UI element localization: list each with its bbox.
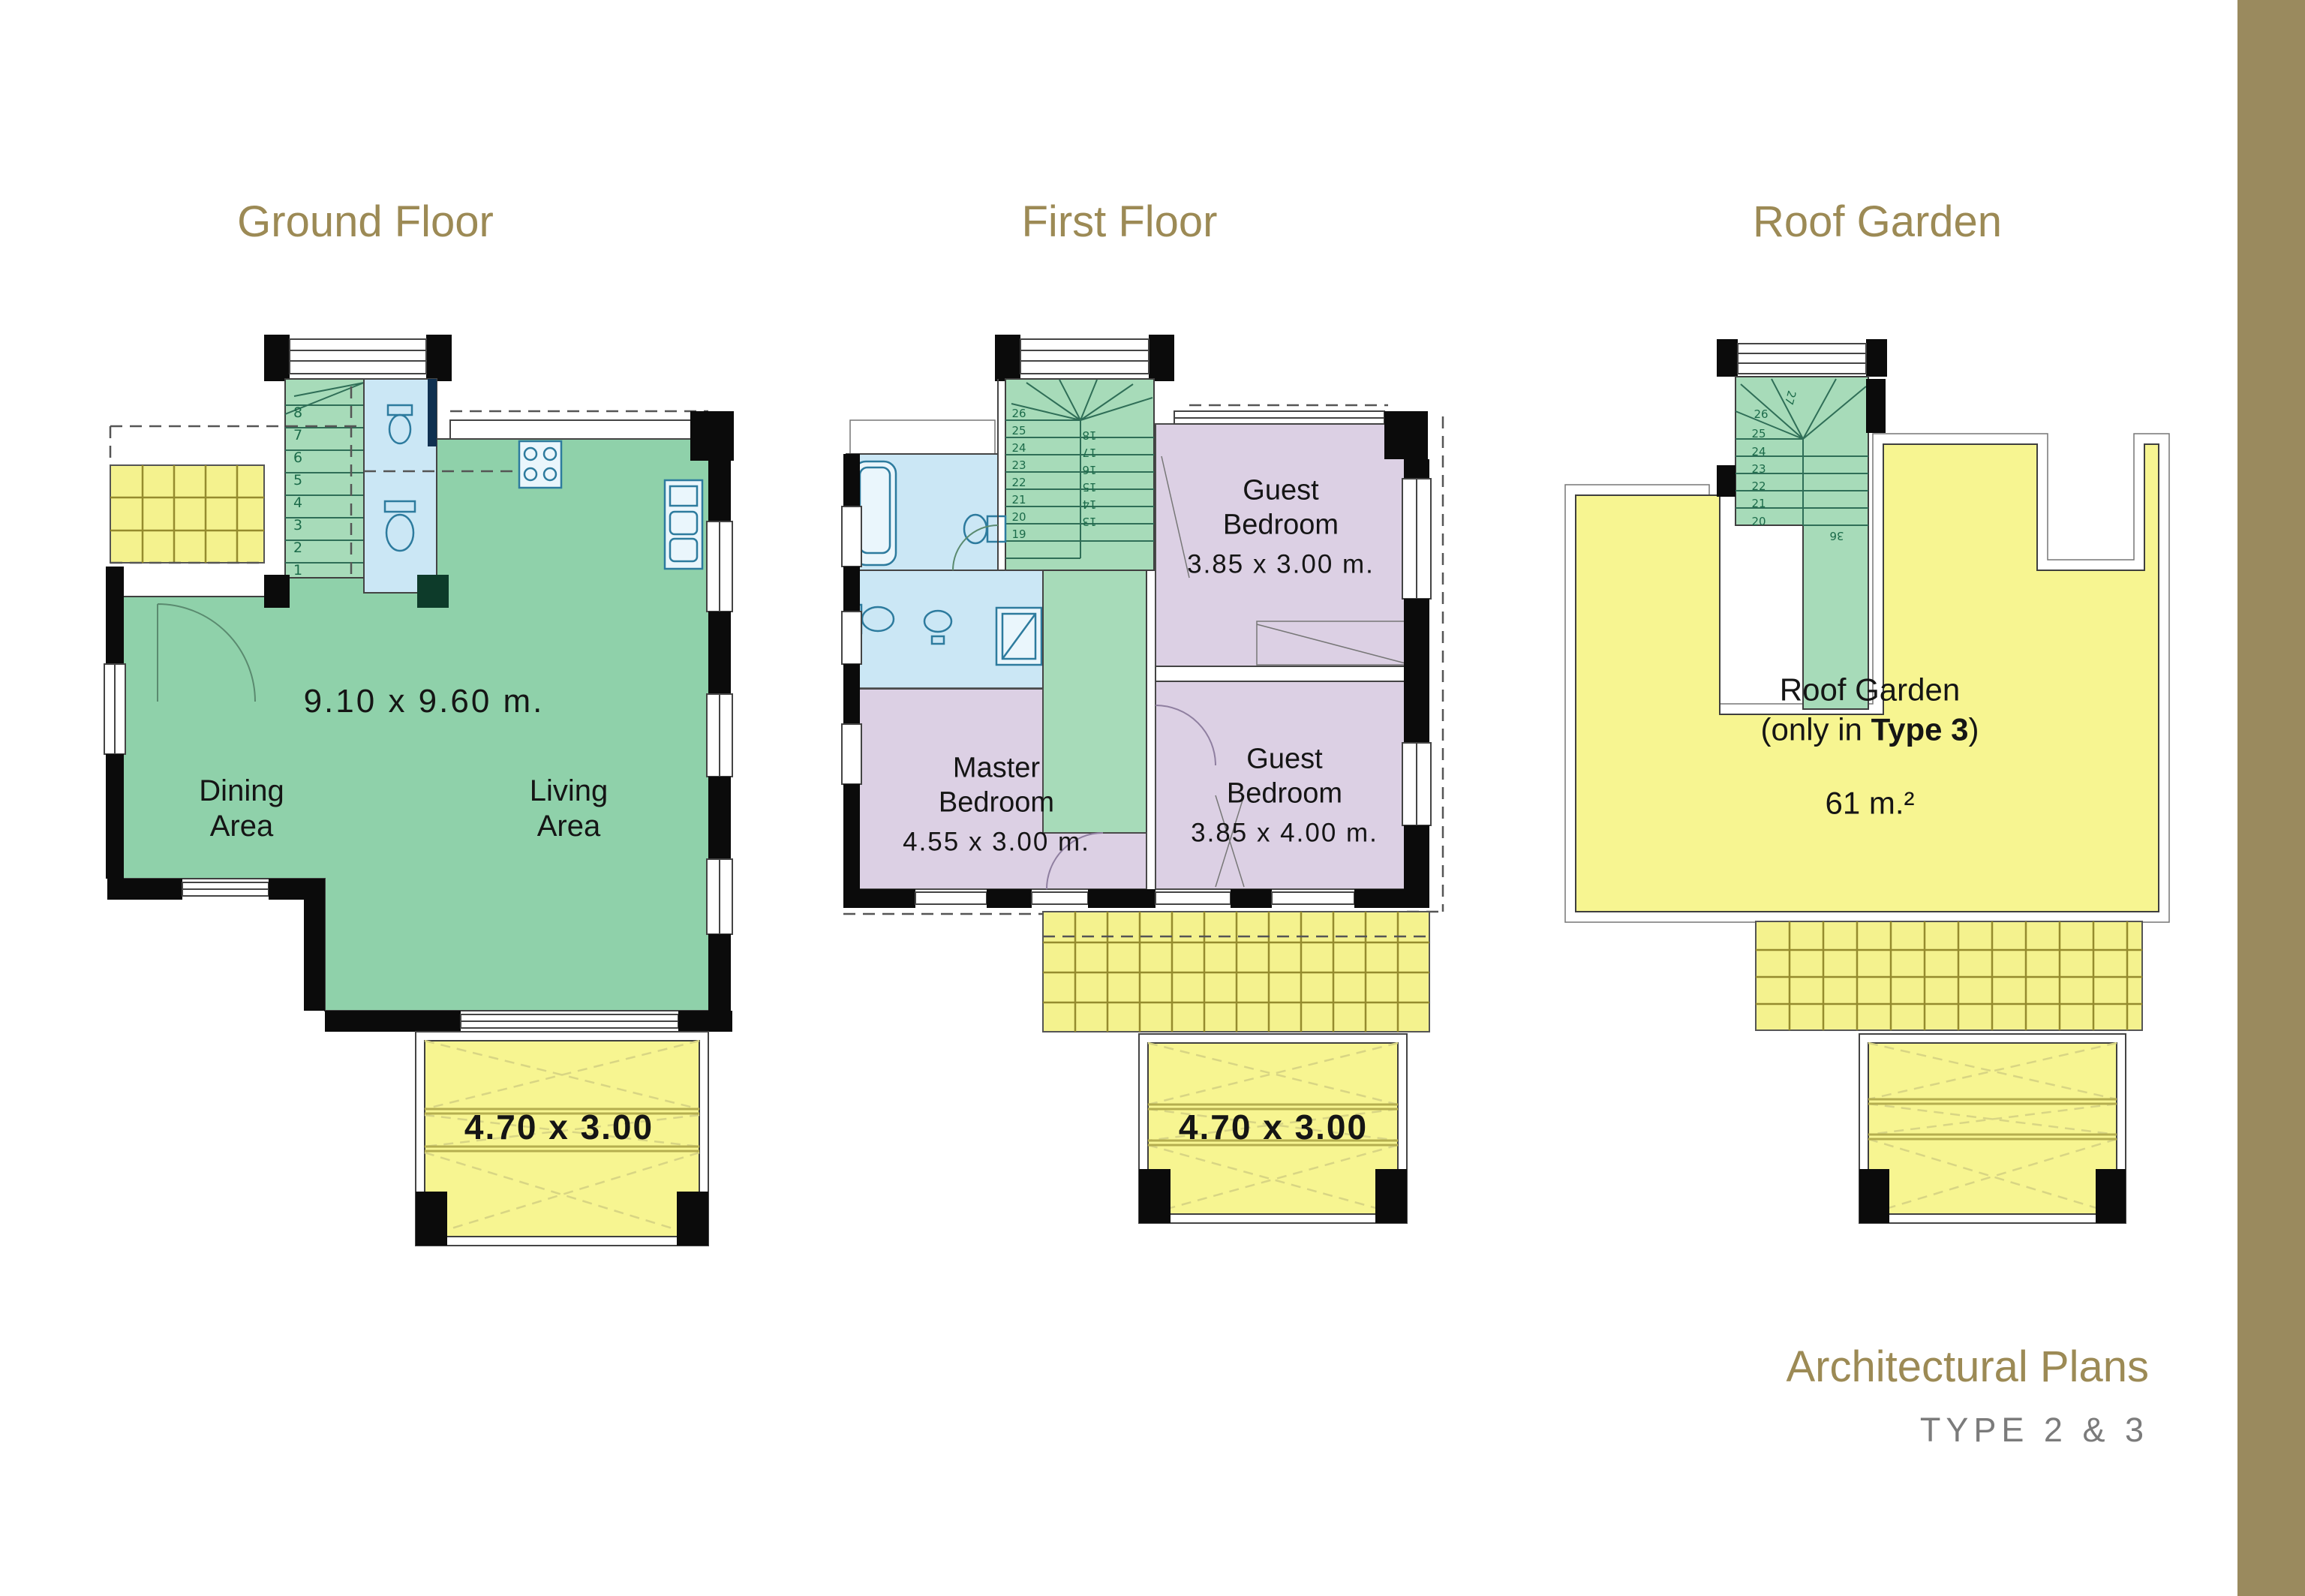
wall bbox=[843, 454, 860, 506]
stair-number: 13 bbox=[1082, 515, 1096, 528]
room-dimension: 3.85 x 4.00 m. bbox=[1191, 819, 1378, 849]
kitchen-window-wall bbox=[450, 420, 710, 439]
room-dimension: 3.85 x 3.00 m. bbox=[1187, 550, 1375, 580]
wall bbox=[1404, 599, 1429, 743]
wall bbox=[325, 1011, 416, 1032]
stair-number: 21 bbox=[1751, 497, 1766, 510]
stair-number: 20 bbox=[1011, 510, 1026, 524]
note-bold: Type 3 bbox=[1871, 711, 1969, 747]
wall bbox=[304, 900, 325, 1011]
guest-bedroom-top-block: Guest Bedroom 3.85 x 3.00 m. bbox=[1187, 473, 1375, 579]
balcony-deck bbox=[1868, 1043, 2117, 1214]
stair-number: 4 bbox=[293, 494, 302, 511]
ground-floor-dimension: 9.10 x 9.60 m. bbox=[304, 683, 545, 720]
wall-post bbox=[1717, 339, 1738, 377]
stair-number: 17 bbox=[1082, 446, 1096, 459]
balcony-post bbox=[1139, 1169, 1171, 1223]
stair-number: 2 bbox=[293, 540, 302, 556]
wall bbox=[843, 567, 860, 612]
balcony-post bbox=[416, 1192, 447, 1246]
window bbox=[1156, 892, 1231, 904]
shower-icon bbox=[996, 608, 1041, 665]
stair-number: 25 bbox=[1011, 424, 1026, 437]
stair-number: 24 bbox=[1011, 441, 1026, 455]
living-area-label: Living Area bbox=[512, 774, 625, 844]
side-porch-pergola bbox=[110, 465, 264, 563]
stair-number: 3 bbox=[293, 517, 302, 534]
first-balcony-dimension: 4.70 x 3.00 bbox=[1179, 1107, 1368, 1147]
wall bbox=[106, 567, 124, 664]
wall bbox=[269, 879, 325, 900]
porch-railing bbox=[1738, 344, 1866, 374]
wall bbox=[1354, 889, 1405, 908]
page-title: Architectural Plans bbox=[1786, 1342, 2149, 1392]
stair-number: 16 bbox=[1082, 463, 1096, 476]
wall bbox=[1231, 889, 1272, 908]
stair-number: 20 bbox=[1751, 515, 1766, 528]
balcony-post bbox=[1375, 1169, 1407, 1223]
wall bbox=[987, 889, 1032, 908]
balcony-post bbox=[1859, 1169, 1889, 1223]
window bbox=[842, 506, 861, 567]
room-dimension: 4.55 x 3.00 m. bbox=[903, 828, 1090, 858]
architectural-plans-page: 1 2 3 4 5 6 7 8 bbox=[0, 0, 2305, 1596]
roof-garden-label: Roof Garden bbox=[1761, 670, 1979, 710]
wall bbox=[678, 1011, 732, 1032]
roof-balcony bbox=[1859, 1034, 2126, 1223]
stair-number: 21 bbox=[1011, 493, 1026, 506]
window bbox=[1272, 892, 1354, 904]
note-prefix: (only in bbox=[1761, 711, 1871, 747]
wall-post bbox=[1717, 465, 1736, 497]
wall bbox=[107, 879, 182, 900]
wall bbox=[708, 777, 731, 859]
wall bbox=[1088, 889, 1156, 908]
stair-number: 19 bbox=[1011, 527, 1026, 541]
stair-number: 36 bbox=[1829, 529, 1844, 543]
wall bbox=[1404, 825, 1429, 908]
kitchen-sink-icon bbox=[665, 480, 702, 569]
room-name: Guest Bedroom bbox=[1206, 742, 1363, 810]
dining-area-label: Dining Area bbox=[185, 774, 298, 844]
master-bedroom-block: Master Bedroom 4.55 x 3.00 m. bbox=[903, 751, 1090, 857]
wc-room bbox=[364, 379, 437, 593]
wall bbox=[416, 1011, 461, 1032]
landing-edge bbox=[850, 420, 995, 456]
window bbox=[842, 612, 861, 664]
stair-number: 24 bbox=[1751, 445, 1766, 458]
ground-floor-title: Ground Floor bbox=[237, 197, 494, 247]
wall bbox=[106, 754, 124, 879]
ground-balcony-dimension: 4.70 x 3.00 bbox=[464, 1107, 654, 1147]
window bbox=[1032, 892, 1088, 904]
pergola bbox=[1756, 921, 2142, 1030]
wall-post bbox=[1866, 379, 1886, 433]
room-name: Guest Bedroom bbox=[1202, 473, 1360, 542]
wall bbox=[708, 612, 731, 694]
window bbox=[842, 724, 861, 784]
wall bbox=[843, 889, 915, 908]
balcony-post bbox=[2096, 1169, 2126, 1223]
stair-number: 15 bbox=[1082, 480, 1096, 494]
stair-number: 18 bbox=[1082, 428, 1096, 442]
window bbox=[915, 892, 987, 904]
stair-number: 5 bbox=[293, 472, 302, 488]
room-name: Master Bedroom bbox=[918, 751, 1075, 819]
stair-number: 8 bbox=[293, 404, 302, 421]
roof-garden-label-block: Roof Garden (only in Type 3) 61 m.² bbox=[1761, 670, 1979, 823]
note-suffix: ) bbox=[1969, 711, 1979, 747]
wall-post bbox=[426, 335, 452, 381]
stair-number: 22 bbox=[1011, 476, 1026, 489]
roof-garden-title: Roof Garden bbox=[1753, 197, 2002, 247]
guest-bedroom-bottom-block: Guest Bedroom 3.85 x 4.00 m. bbox=[1191, 742, 1378, 848]
bedroom-divider-wall bbox=[1156, 666, 1407, 681]
balcony-post bbox=[677, 1192, 708, 1246]
stair-number: 23 bbox=[1751, 462, 1766, 476]
wall bbox=[843, 664, 860, 724]
stair-number: 26 bbox=[1011, 407, 1026, 420]
side-accent-stripe bbox=[2237, 0, 2305, 1596]
stair-number: 25 bbox=[1751, 427, 1766, 440]
first-floor-title: First Floor bbox=[1022, 197, 1218, 247]
stair-number: 6 bbox=[293, 449, 302, 466]
stair-number: 22 bbox=[1751, 479, 1766, 493]
stair-number: 23 bbox=[1011, 458, 1026, 472]
wall bbox=[708, 934, 731, 1011]
stove-icon bbox=[519, 441, 561, 488]
wall bbox=[1404, 459, 1429, 479]
wall-post bbox=[264, 335, 290, 381]
porch-railing bbox=[290, 339, 426, 374]
stair-number: 7 bbox=[293, 427, 302, 443]
wall-post bbox=[264, 575, 290, 608]
roof-garden-area: 61 m.² bbox=[1761, 783, 1979, 823]
wall bbox=[843, 784, 860, 889]
duct bbox=[428, 379, 437, 446]
stair-number: 1 bbox=[293, 562, 302, 579]
porch-railing bbox=[1020, 339, 1149, 374]
stair-number: 26 bbox=[1754, 407, 1768, 421]
wall-post bbox=[1866, 339, 1887, 377]
page-subtitle: TYPE 2 & 3 bbox=[1920, 1411, 2149, 1450]
wall-post bbox=[995, 335, 1020, 381]
wall-post-dark bbox=[417, 575, 449, 608]
wall-post bbox=[1384, 411, 1428, 459]
wall bbox=[708, 439, 731, 521]
wall-post bbox=[1149, 335, 1174, 381]
stair-number: 14 bbox=[1082, 497, 1096, 511]
roof-garden-note: (only in Type 3) bbox=[1761, 710, 1979, 750]
